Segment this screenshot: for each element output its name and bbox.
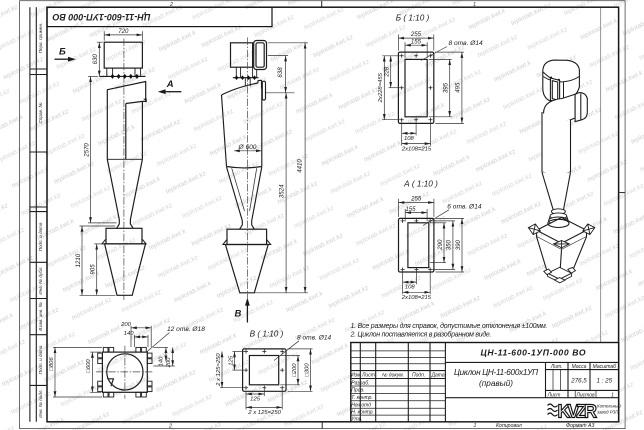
svg-text:2: 2	[168, 424, 172, 430]
svg-text:Пров.: Пров.	[351, 388, 364, 394]
svg-text:□600: □600	[86, 359, 92, 373]
svg-text:В: В	[235, 309, 242, 320]
svg-text:108: 108	[405, 285, 416, 291]
svg-text:140: 140	[124, 331, 135, 337]
svg-text:2 х 125=250: 2 х 125=250	[216, 353, 222, 387]
svg-text:1 : 25: 1 : 25	[597, 378, 613, 385]
svg-text:1: 1	[474, 423, 477, 429]
svg-text:630: 630	[92, 54, 99, 65]
svg-text:Инв. № подл.: Инв. № подл.	[38, 389, 43, 418]
svg-text:Нач.отд: Нач.отд	[351, 402, 371, 408]
svg-text:638: 638	[277, 67, 284, 78]
svg-text:Перв. примен.: Перв. примен.	[38, 23, 43, 54]
svg-text:1. Все размеры для справок, до: 1. Все размеры для справок, допустимые о…	[351, 322, 548, 330]
svg-text:Инв. № дубл.: Инв. № дубл.	[38, 266, 43, 294]
svg-text:Масштаб: Масштаб	[593, 364, 617, 370]
svg-text:1: 1	[473, 2, 476, 8]
svg-text:140: 140	[159, 356, 165, 367]
svg-text:290: 290	[437, 239, 444, 251]
svg-text:390: 390	[455, 240, 462, 251]
svg-text:Б: Б	[59, 47, 66, 58]
svg-text:Формат А3: Формат А3	[566, 423, 594, 429]
svg-text:Подп. и дата: Подп. и дата	[38, 345, 43, 374]
svg-text:155: 155	[405, 206, 416, 213]
svg-text:125: 125	[250, 397, 261, 403]
svg-text:108: 108	[404, 136, 415, 142]
svg-text:Разраб.: Разраб.	[351, 380, 369, 386]
svg-text:Циклон ЦН-11-600х1УП: Циклон ЦН-11-600х1УП	[454, 368, 538, 377]
svg-text:Копировал: Копировал	[496, 423, 522, 429]
svg-text:Лист: Лист	[361, 373, 375, 379]
svg-text:155: 155	[411, 39, 422, 46]
svg-text:Масса: Масса	[572, 364, 587, 370]
svg-text:2570: 2570	[83, 143, 90, 158]
svg-text:3524: 3524	[279, 184, 286, 198]
svg-text:(правый): (правый)	[479, 379, 513, 388]
svg-text:2. Циклон поставляется в разоб: 2. Циклон поставляется в разобранном вид…	[350, 331, 492, 339]
svg-text:12 отв. Ø18: 12 отв. Ø18	[167, 326, 205, 333]
svg-text:395: 395	[443, 82, 450, 93]
svg-text:6 отв. Ø14: 6 отв. Ø14	[447, 203, 482, 210]
svg-text:350: 350	[446, 240, 453, 251]
svg-text:1210: 1210	[75, 253, 82, 267]
svg-text:200: 200	[120, 322, 132, 328]
svg-text:125: 125	[228, 355, 234, 366]
svg-text:Ø 600: Ø 600	[238, 144, 257, 151]
svg-text:Изм: Изм	[351, 373, 361, 379]
svg-text:Лит.: Лит.	[550, 364, 563, 370]
svg-text:Подп. и дата: Подп. и дата	[38, 222, 43, 251]
svg-text:Подп.: Подп.	[412, 373, 425, 379]
svg-text:ЦН-11-600-1УП-000 ВО: ЦН-11-600-1УП-000 ВО	[52, 11, 150, 22]
svg-text:2 х 125=250: 2 х 125=250	[247, 410, 281, 416]
svg-text:Листов: Листов	[575, 392, 595, 398]
svg-text:Справ. №: Справ. №	[38, 103, 43, 124]
svg-text:№ докум.: № докум.	[382, 373, 404, 379]
svg-text:KVZR: KVZR	[558, 402, 598, 422]
svg-text:Котельный: Котельный	[597, 404, 621, 409]
svg-text:8 отв. Ø14: 8 отв. Ø14	[449, 40, 484, 47]
svg-text:□806: □806	[49, 357, 55, 371]
svg-text:□200: □200	[292, 363, 298, 377]
svg-text:4410: 4410	[296, 159, 303, 173]
svg-text:Т. контр.: Т. контр.	[351, 395, 373, 401]
svg-text:200: 200	[166, 357, 172, 369]
svg-text:Утв.: Утв.	[351, 416, 362, 422]
svg-text:2х228=455: 2х228=455	[378, 72, 384, 103]
svg-text:720: 720	[118, 28, 129, 35]
svg-text:495: 495	[455, 82, 462, 93]
svg-text:□300: □300	[304, 363, 310, 377]
svg-text:905: 905	[90, 264, 97, 275]
svg-text:8 отв. Ø14: 8 отв. Ø14	[297, 334, 332, 341]
svg-text:228: 228	[385, 66, 391, 78]
svg-text:В ( 1:10 ): В ( 1:10 )	[250, 330, 284, 339]
svg-text:Взам. инв. №: Взам. инв. №	[38, 302, 43, 330]
svg-text:Лист: Лист	[547, 392, 561, 398]
svg-text:1: 1	[611, 392, 614, 398]
svg-text:2х108=215: 2х108=215	[401, 295, 432, 301]
svg-text:255: 255	[410, 31, 422, 38]
svg-text:Б ( 1:10 ): Б ( 1:10 )	[396, 13, 430, 22]
svg-text:Н. контр.: Н. контр.	[351, 409, 374, 415]
svg-text:2х108=215: 2х108=215	[401, 146, 432, 152]
svg-text:ЦН-11-600-1УП-000 ВО: ЦН-11-600-1УП-000 ВО	[481, 347, 586, 357]
svg-text:Дата: Дата	[431, 373, 445, 379]
svg-text:А ( 1:10 ): А ( 1:10 )	[403, 180, 438, 189]
svg-text:завод РЗП: завод РЗП	[596, 410, 619, 415]
svg-text:255: 255	[410, 195, 422, 202]
svg-text:276,5: 276,5	[570, 378, 587, 385]
svg-text:А: А	[166, 79, 174, 90]
